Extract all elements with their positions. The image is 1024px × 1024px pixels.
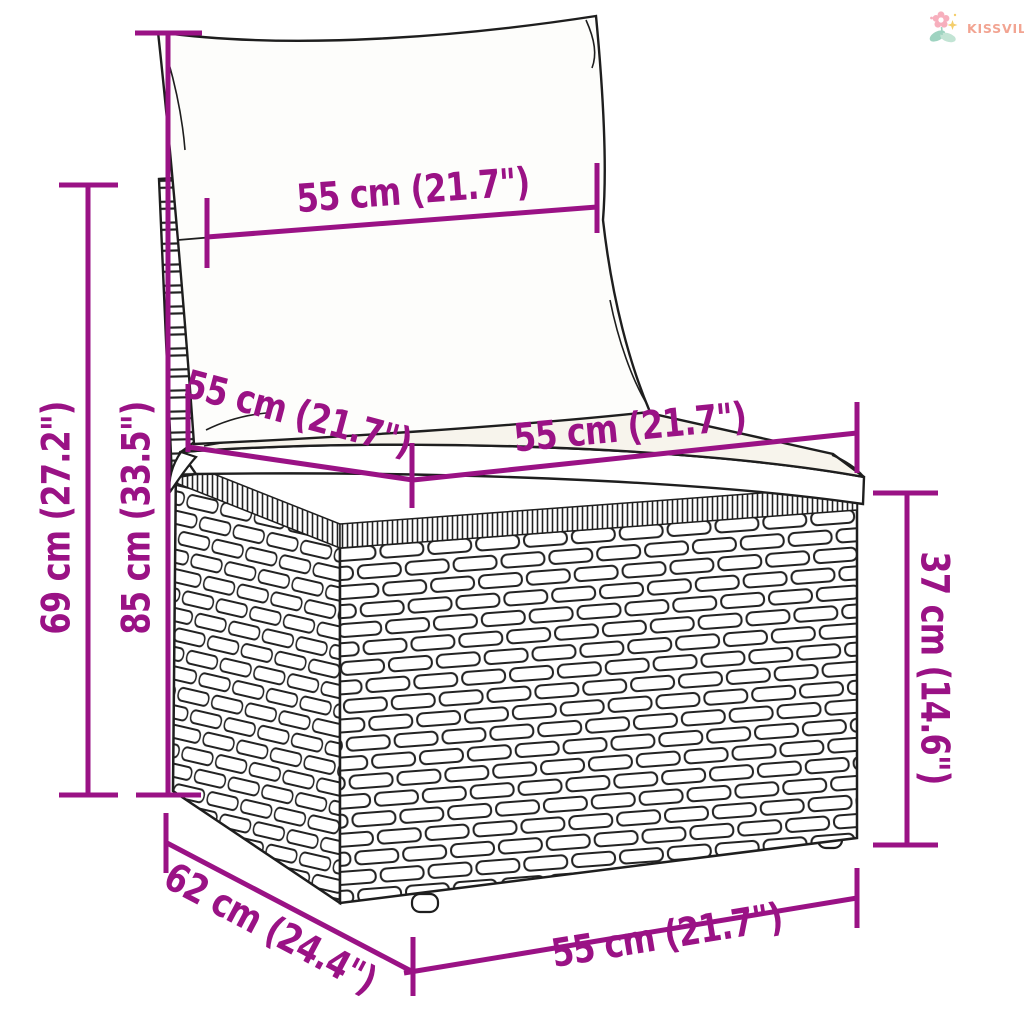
wicker-base	[173, 459, 857, 912]
dimension-label-total-height: 85 cm (33.5")	[118, 401, 157, 634]
dimension-label-seat-height: 37 cm (14.6")	[915, 551, 954, 784]
base-front-face	[340, 487, 857, 903]
flower-icon	[924, 8, 964, 48]
brand-name: KISSVILÁG	[967, 21, 1024, 36]
brand-logo: KISSVILÁG	[924, 8, 1024, 48]
dimension-label-backrest-height: 69 cm (27.2")	[38, 401, 77, 634]
product-dimension-diagram: 55 cm (21.7") 69 cm (27.2") 85 cm (33.5"…	[0, 0, 1024, 1024]
